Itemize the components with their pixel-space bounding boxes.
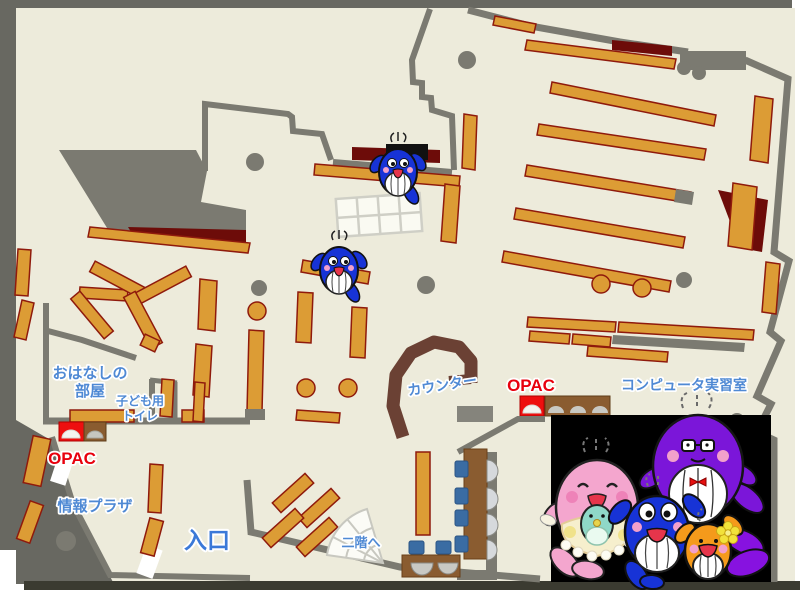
kids-toilet-label: トイレ — [122, 409, 158, 423]
pillar — [676, 272, 692, 288]
stairs-label: 二階へ — [341, 535, 380, 550]
round-table — [339, 379, 357, 397]
pillar — [692, 66, 706, 80]
mascot-family-panel — [539, 392, 773, 590]
round-table — [248, 302, 266, 320]
library-floor-map: おはなしの 部屋 子ども用 トイレ OPAC 情報プラザ 入口 カウンター OP… — [0, 0, 800, 590]
outer-wall-left — [0, 0, 16, 550]
outer-wall-bottom — [24, 581, 800, 590]
bookshelf — [529, 331, 570, 344]
bookshelf — [462, 114, 477, 170]
outer-wall-top — [0, 0, 792, 8]
bookshelf — [441, 184, 460, 243]
computer-room-label: コンピュータ実習室 — [621, 377, 747, 393]
kids-toilet-label: 子ども用 — [116, 394, 164, 408]
pillar — [251, 280, 267, 296]
round-table — [633, 279, 651, 297]
round-table — [592, 275, 610, 293]
pillar — [677, 61, 691, 75]
chair — [455, 461, 468, 477]
bookshelf — [350, 307, 367, 358]
bookshelf — [148, 464, 163, 513]
chair — [455, 536, 468, 552]
bookshelf — [198, 279, 217, 331]
chair — [409, 541, 424, 554]
bookshelf — [762, 262, 780, 314]
opac-right-label: OPAC — [507, 376, 555, 395]
bookshelf — [296, 410, 340, 423]
opac-terminal-left — [59, 422, 106, 441]
bookshelf — [572, 334, 611, 347]
pillar — [417, 276, 435, 294]
opac-left-label: OPAC — [48, 449, 96, 468]
bookshelf — [193, 382, 205, 422]
info-plaza-label: 情報プラザ — [57, 497, 132, 515]
round-table — [297, 379, 315, 397]
bookshelf — [728, 183, 757, 250]
chair — [455, 510, 468, 526]
bookshelf — [416, 452, 430, 535]
counter-desk — [457, 406, 493, 422]
pillar — [246, 153, 264, 171]
bookshelf — [15, 249, 31, 296]
chair — [436, 541, 451, 554]
bookshelf — [247, 330, 264, 412]
pillar — [458, 51, 476, 69]
pillar — [56, 531, 76, 551]
storytelling-room-label: おはなしの — [52, 365, 127, 382]
chair — [455, 488, 468, 504]
entrance-label: 入口 — [184, 527, 230, 553]
bookshelf — [296, 292, 313, 343]
storytelling-room-label: 部屋 — [75, 382, 105, 400]
baby-whale-icon — [581, 505, 613, 545]
opac-terminal-right — [520, 396, 610, 416]
